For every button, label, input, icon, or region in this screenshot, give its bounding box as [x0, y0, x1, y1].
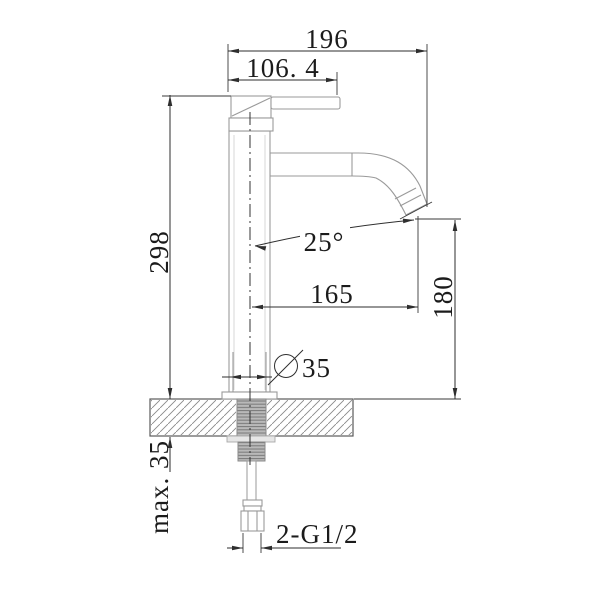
faucet-spout	[270, 153, 427, 215]
dim-body-height: 298	[144, 95, 231, 399]
dim-spout-angle-label: 25°	[304, 227, 345, 257]
dim-spout-reach-label: 165	[310, 279, 354, 309]
threaded-shank	[237, 399, 266, 436]
deck-hatch-right	[267, 400, 352, 435]
dim-spout-angle: 25°	[254, 218, 414, 257]
dim-base-diameter-label: 35	[302, 353, 331, 383]
faucet-handle-cap	[229, 96, 273, 131]
dim-overall-width-label: 196	[305, 24, 349, 54]
dim-max-deck-thickness: max. 35	[144, 437, 174, 534]
dim-handle-width-label: 106. 4	[246, 53, 320, 83]
hose-collar2	[244, 506, 261, 511]
dim-spout-height: 180	[354, 202, 461, 399]
dim-inlet-thread-label: 2-G1/2	[276, 519, 359, 549]
diameter-symbol	[268, 350, 303, 385]
faucet-dimension-diagram: 196 106. 4 298 max. 35 180 165	[0, 0, 600, 600]
dim-spout-height-label: 180	[428, 275, 458, 319]
dim-body-height-label: 298	[144, 230, 174, 274]
drawing-canvas: 196 106. 4 298 max. 35 180 165	[0, 0, 600, 600]
locknut-washer	[227, 436, 275, 442]
deck-hatch-left	[151, 400, 236, 435]
dim-max-deck-thickness-label: max. 35	[144, 440, 174, 534]
locknut	[238, 442, 265, 461]
supply-hose	[241, 461, 264, 531]
faucet-handle-lever	[271, 97, 340, 109]
hose-collar	[243, 500, 262, 506]
dim-handle-width: 106. 4	[228, 53, 337, 95]
hose-fitting-hex	[241, 511, 264, 531]
faucet	[222, 96, 427, 531]
